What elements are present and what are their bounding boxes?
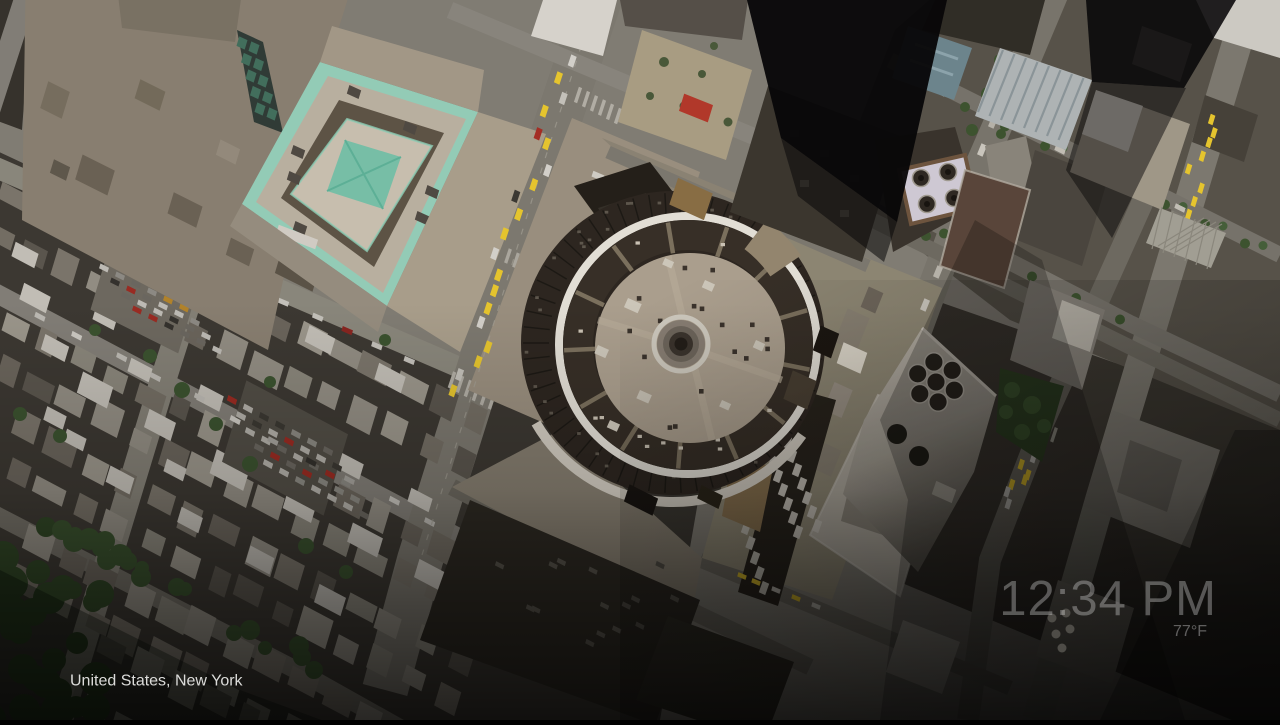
svg-text:United States, New York: United States, New York [70,673,244,690]
svg-text:12:34 PM: 12:34 PM [999,572,1217,626]
svg-text:77°F: 77°F [1173,623,1207,640]
